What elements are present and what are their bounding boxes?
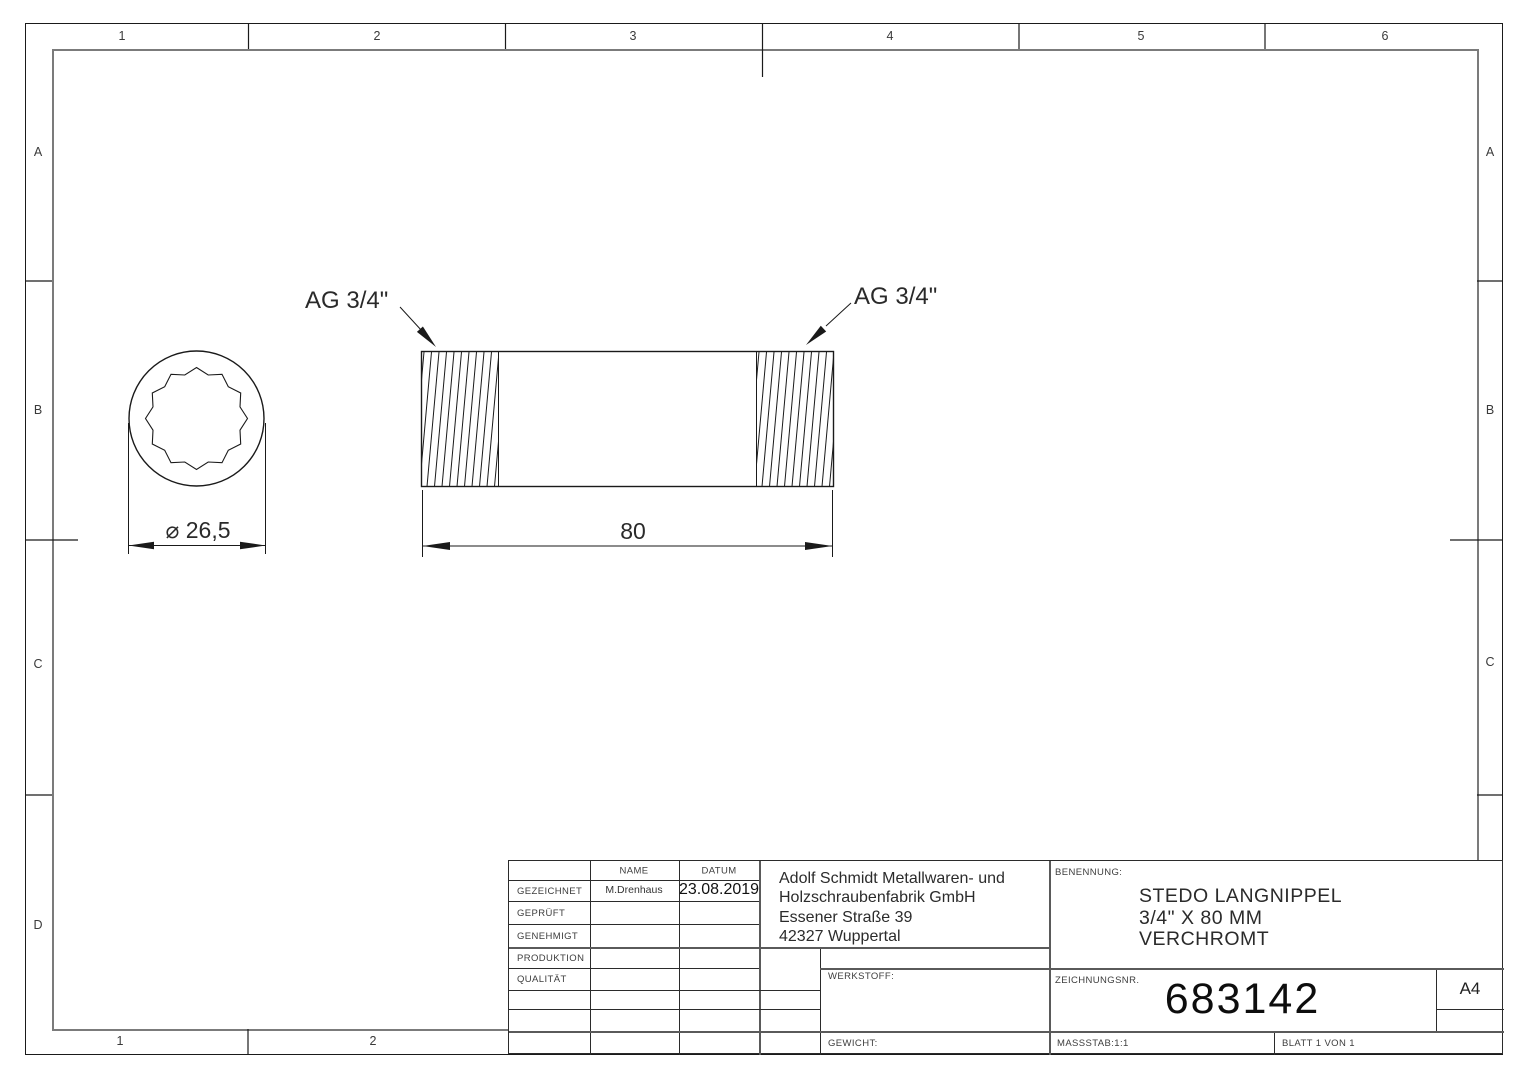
- company-address: Adolf Schmidt Metallwaren- und Holzschra…: [779, 869, 1005, 946]
- arrowhead: [417, 327, 436, 348]
- length-dimension-text: 80: [620, 518, 646, 545]
- arrowhead: [240, 542, 266, 550]
- arrowhead: [805, 542, 833, 550]
- row-label-gezeichnet: GEZEICHNET: [517, 886, 582, 897]
- row-label-geprueft: GEPRÜFT: [517, 908, 565, 919]
- blatt-value: BLATT 1 VON 1: [1282, 1038, 1355, 1049]
- name-column-header: NAME: [619, 866, 648, 877]
- internal-profile-polygon: [146, 368, 248, 470]
- title-block: NAME DATUM GEZEICHNET M.Drenhaus 23.08.2…: [508, 860, 1503, 1054]
- side-view: [412, 352, 842, 487]
- diameter-dimension-text: ⌀ 26,5: [165, 517, 230, 544]
- outer-diameter-circle: [129, 351, 264, 486]
- leader-thread-left: [400, 307, 436, 347]
- front-view: [129, 351, 264, 486]
- thread-hatch-right: [747, 352, 842, 487]
- werkstoff-label: WERKSTOFF:: [828, 971, 894, 982]
- row-label-produktion: PRODUKTION: [517, 953, 584, 964]
- arrowhead: [423, 542, 451, 550]
- engineering-drawing-sheet: { "sheet": { "border": { "top": ["1","2"…: [0, 0, 1528, 1080]
- arrowhead: [129, 542, 155, 550]
- thread-hatch-left: [412, 352, 507, 487]
- gezeichnet-date: 23.08.2019: [679, 881, 759, 899]
- gewicht-label: GEWICHT:: [828, 1038, 878, 1049]
- part-title: STEDO LANGNIPPEL 3/4" X 80 MM VERCHROMT: [1139, 886, 1342, 951]
- thread-callout-left: AG 3/4": [305, 287, 388, 315]
- date-column-header: DATUM: [701, 866, 736, 877]
- row-label-genehmigt: GENEHMIGT: [517, 931, 578, 942]
- row-label-qualitaet: QUALITÄT: [517, 974, 567, 985]
- paper-format: A4: [1436, 968, 1504, 1009]
- drawing-number: 683142: [1049, 968, 1436, 1031]
- thread-callout-right: AG 3/4": [854, 283, 937, 311]
- arrowhead: [806, 326, 826, 345]
- benennung-label: BENENNUNG:: [1055, 867, 1122, 878]
- leader-thread-right: [806, 303, 851, 345]
- massstab-value: MASSSTAB:1:1: [1057, 1038, 1129, 1049]
- gezeichnet-name: M.Drenhaus: [605, 884, 662, 896]
